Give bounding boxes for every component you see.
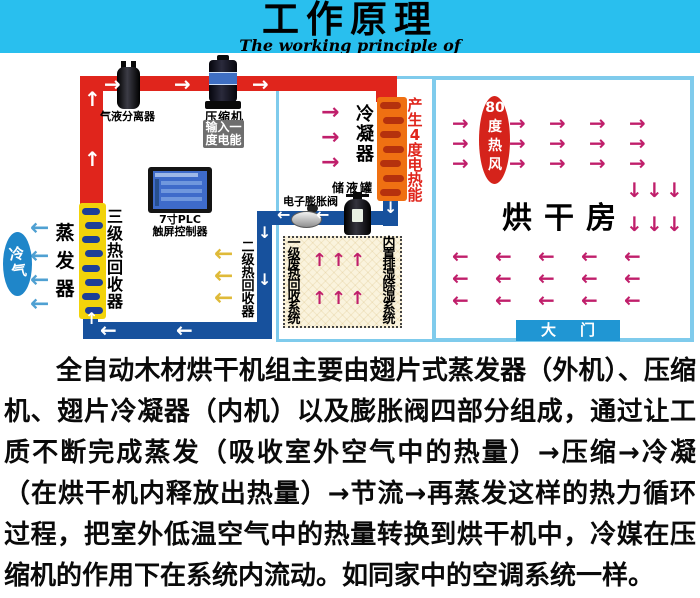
left-arrow-icon: ←	[581, 290, 598, 310]
right-arrow-icon: →	[452, 133, 469, 153]
working-principle-diagram: 冷气 80度热风 蒸发器 三级热回收器 二级热回收器 冷凝器 产生4度电热能 一…	[0, 53, 700, 345]
down-arrow-icon: ↓	[626, 214, 643, 234]
left-arrow-icon: ←	[581, 268, 598, 288]
plc-screen-row	[161, 189, 202, 193]
left-arrow-icon: ←	[538, 268, 555, 288]
left-arrow-icon: ←	[624, 290, 641, 310]
right-arrow-icon: →	[174, 74, 191, 94]
right-arrow-icon: →	[589, 153, 606, 173]
down-arrow-icon: ↓	[626, 180, 643, 200]
right-arrow-icon: →	[452, 113, 469, 133]
up-arrow-icon: ↑	[85, 311, 98, 327]
poster-page: 工作原理 The working principle of	[0, 0, 700, 598]
left-arrow-icon: ←	[30, 269, 49, 292]
right-arrow-icon: →	[321, 152, 339, 174]
plc-screen-header	[155, 173, 198, 177]
gas-liquid-separator-label: 气液分离器	[100, 108, 155, 124]
right-arrow-icon: →	[509, 153, 526, 173]
gate-label: 大门	[516, 320, 620, 341]
left-arrow-icon: ←	[495, 268, 512, 288]
right-arrow-icon: →	[252, 74, 269, 94]
title-banner: 工作原理 The working principle of	[0, 0, 700, 53]
drying-room-label: 烘干房	[502, 193, 628, 237]
right-arrow-icon: →	[589, 113, 606, 133]
plc-screen-row	[161, 197, 202, 201]
heat-recovery-3-label: 三级热回收器	[104, 208, 126, 310]
up-arrow-icon: ↑	[331, 252, 346, 270]
right-arrow-icon: →	[549, 133, 566, 153]
receiver-tank-label: 储液罐	[332, 179, 374, 196]
condenser-coil	[377, 97, 407, 201]
waste-heat-recovery-label: 一级废热回收系统	[286, 239, 302, 325]
left-arrow-icon: ←	[30, 245, 49, 268]
right-arrow-icon: →	[549, 113, 566, 133]
left-arrow-icon: ←	[581, 246, 598, 266]
right-arrow-icon: →	[509, 133, 526, 153]
hot-air-label: 80度热风	[484, 99, 506, 175]
page-title: 工作原理	[0, 1, 700, 39]
left-arrow-icon: ←	[495, 290, 512, 310]
plc-label: 7寸PLC 触屏控制器	[142, 214, 218, 238]
plc-label-line2: 触屏控制器	[142, 226, 218, 238]
up-arrow-icon: ↑	[350, 252, 365, 270]
left-arrow-icon: ←	[30, 217, 49, 240]
power-input-line2: 度电能	[203, 134, 244, 147]
right-arrow-icon: →	[549, 153, 566, 173]
left-arrow-icon: ←	[100, 320, 117, 340]
condenser-label: 冷凝器	[354, 105, 376, 165]
right-arrow-icon: →	[629, 133, 646, 153]
plc-controller-device	[148, 167, 212, 213]
left-arrow-icon: ←	[452, 290, 469, 310]
left-arrow-icon: ←	[452, 268, 469, 288]
left-arrow-icon: ←	[176, 320, 193, 340]
dehumidify-system-label: 内置排湿除湿系统	[381, 239, 397, 325]
right-arrow-icon: →	[104, 74, 121, 94]
heat-recovery-2-label: 二级热回收器	[238, 241, 258, 319]
receiver-tank-device	[344, 192, 371, 235]
right-arrow-icon: →	[629, 153, 646, 173]
left-arrow-icon: ←	[277, 207, 290, 223]
left-arrow-icon: ←	[30, 293, 49, 316]
right-arrow-icon: →	[321, 102, 339, 124]
right-arrow-icon: →	[509, 113, 526, 133]
right-arrow-icon: →	[589, 133, 606, 153]
right-arrow-icon: →	[452, 153, 469, 173]
power-input-badge: 输入一 度电能	[203, 120, 244, 148]
up-arrow-icon: ↑	[331, 290, 346, 308]
down-arrow-icon: ↓	[258, 272, 271, 288]
heat-output-label: 产生4度电热能	[405, 98, 425, 203]
right-arrow-icon: →	[629, 113, 646, 133]
down-arrow-icon: ↓	[646, 180, 663, 200]
down-arrow-icon: ↓	[646, 214, 663, 234]
description-text: 全自动木材烘干机组主要由翅片式蒸发器（外机）、压缩机、翅片冷凝器（内机）以及膨胀…	[0, 345, 700, 597]
up-arrow-icon: ↑	[312, 290, 327, 308]
left-arrow-icon: ←	[452, 246, 469, 266]
left-arrow-icon: ←	[624, 268, 641, 288]
down-arrow-icon: ↓	[666, 214, 683, 234]
tank-label-chip	[352, 209, 363, 222]
evaporator-label: 蒸发器	[54, 219, 76, 303]
cold-air-label: 冷气	[5, 245, 32, 282]
page-subtitle: The working principle of	[0, 39, 700, 53]
down-arrow-icon: ↓	[666, 180, 683, 200]
up-arrow-icon: ↑	[350, 290, 365, 308]
down-arrow-icon: ↓	[384, 200, 397, 216]
left-arrow-icon: ←	[538, 246, 555, 266]
plc-screen-sidebar	[155, 179, 159, 206]
left-arrow-icon: ←	[495, 246, 512, 266]
description-block: 全自动木材烘干机组主要由翅片式蒸发器（外机）、压缩机、翅片冷凝器（内机）以及膨胀…	[0, 345, 700, 598]
right-arrow-icon: →	[321, 127, 339, 149]
up-arrow-icon: ↑	[312, 252, 327, 270]
up-arrow-icon: ↑	[84, 89, 101, 109]
left-arrow-icon: ←	[624, 246, 641, 266]
down-arrow-icon: ↓	[258, 225, 271, 241]
heat-recovery-coil	[79, 203, 106, 319]
left-arrow-icon: ←	[214, 287, 233, 310]
up-arrow-icon: ↑	[84, 149, 101, 169]
expansion-valve-label: 电子膨胀阀	[283, 193, 338, 209]
left-arrow-icon: ←	[316, 207, 329, 223]
compressor-label-band	[209, 72, 237, 85]
plc-screen-row	[161, 181, 202, 185]
compressor-device	[207, 55, 239, 111]
plc-screen	[153, 171, 207, 209]
left-arrow-icon: ←	[538, 290, 555, 310]
